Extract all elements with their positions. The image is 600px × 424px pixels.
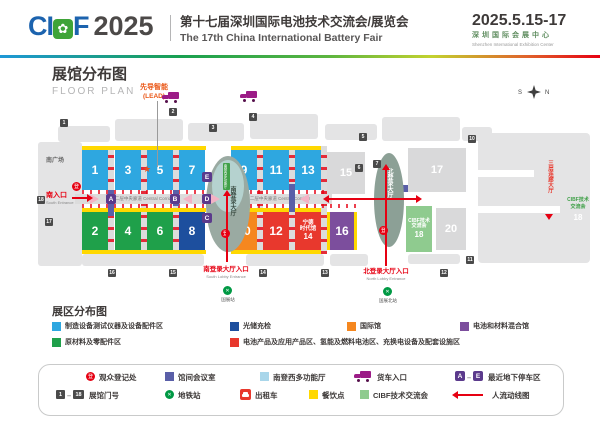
- gate-6: 6: [355, 164, 363, 172]
- north-lobby-entrance-en: North Lobby Entrance: [350, 277, 422, 282]
- hall-16: 16: [330, 212, 354, 250]
- flow-arrow-pink: [183, 194, 192, 204]
- legend-food-swatch: [309, 390, 318, 399]
- building-shape: [250, 114, 318, 139]
- gate-15: 15: [169, 269, 177, 277]
- lead-label-cn: 先导智能: [130, 84, 178, 92]
- metro-station-icon: ✕: [383, 287, 392, 296]
- legend-meeting-swatch: [165, 372, 174, 381]
- logo-ci: CI: [28, 11, 53, 41]
- lead-pointer-line: [157, 101, 158, 167]
- corridor-flow-arrowhead-left: [323, 195, 329, 203]
- logo-year: 2025: [94, 11, 154, 41]
- zone-label: 电池产品及应用产品区、氢能及燃料电池区、充换电设备及配套设施区: [243, 339, 460, 346]
- legend-parking-a: A: [455, 371, 465, 381]
- south-flow-arrow: [226, 196, 228, 262]
- gate-10: 10: [468, 135, 476, 143]
- header-gradient-bar: [0, 55, 600, 58]
- zone-swatch-red: [230, 338, 239, 347]
- gate-7: 7: [373, 160, 381, 168]
- legend-parking-e: E: [473, 371, 483, 381]
- yellow-strip: [354, 212, 357, 250]
- truck-icon: [162, 92, 179, 103]
- legend-taxi-icon: [240, 389, 251, 400]
- south-entrance-en: South Entrance: [46, 201, 74, 206]
- compass-s: S: [518, 90, 522, 97]
- hall-11: 11: [263, 150, 289, 190]
- parking-gate-a: A: [106, 194, 116, 204]
- legend-metro-icon: ✕: [165, 390, 174, 399]
- zones-title: 展区分布图: [52, 306, 107, 319]
- legend-cibf-label: CIBF技术交流会: [373, 392, 428, 400]
- gate-18: 18: [37, 196, 45, 204]
- building-gap: [478, 206, 560, 213]
- right-cibf-number: 18: [560, 213, 596, 222]
- legend-dash: –: [67, 392, 71, 400]
- legend-gate-label: 展馆门号: [89, 392, 119, 400]
- hall-17: 17: [408, 148, 466, 192]
- legend-cibf-swatch: [360, 390, 369, 399]
- truck-icon: [240, 91, 257, 102]
- gate-11: 11: [466, 256, 474, 264]
- building-shape: [408, 254, 460, 264]
- yellow-strip: [82, 250, 206, 254]
- legend-meeting-label: 馆间会议室: [178, 374, 216, 382]
- zone-label: 光储充检: [243, 323, 271, 330]
- fair-title-en: The 17th China International Battery Fai…: [180, 32, 382, 44]
- venue-en: Shenzhen International Exhibition Center: [472, 42, 554, 47]
- north-lobby-entrance-cn: 北登录大厅入口: [350, 268, 422, 275]
- right-cibf-line2: 交流会: [560, 205, 596, 211]
- parking-gate-b: B: [170, 194, 180, 204]
- south-flow-arrowhead: [223, 190, 231, 196]
- legend-metro-label: 地铁站: [178, 392, 201, 400]
- gate-5: 5: [359, 133, 367, 141]
- legend-registration-label: 观众登记处: [99, 374, 137, 382]
- gate-12: 12: [440, 269, 448, 277]
- building-shape: [58, 126, 110, 142]
- right-cibf-line1: CIBF技术: [560, 198, 596, 204]
- hall-14-number: 14: [304, 233, 313, 241]
- metro-station-icon: ✕: [223, 286, 232, 295]
- compass-icon: [527, 85, 541, 99]
- gate-4: 4: [249, 113, 257, 121]
- building-gap: [478, 170, 534, 177]
- legend-taxi-label: 出租车: [255, 392, 278, 400]
- building-shape: [382, 117, 460, 141]
- legend-gate-18: 18: [73, 390, 84, 399]
- hall-20: 20: [436, 208, 466, 250]
- hall-14-catl: 宁德 时代馆 14: [295, 212, 321, 250]
- legend-food-label: 餐饮点: [322, 392, 345, 400]
- flow-arrow-pink: [211, 194, 220, 204]
- legend-parking-label: 最近地下停车区: [488, 374, 541, 382]
- zone-swatch-purple: [460, 322, 469, 331]
- legend-registration-icon: 登: [86, 372, 95, 381]
- bridge-hall-arrow: [545, 214, 553, 220]
- hall-18-line2: 交流会: [411, 224, 426, 229]
- battery-flower-icon: ✿: [53, 19, 73, 39]
- corridor-label-east: 二层中央廊道 Central Corridor: [238, 194, 322, 203]
- zone-swatch-dark-blue: [230, 322, 239, 331]
- hall-4: 4: [115, 212, 141, 250]
- zone-swatch-light-blue: [52, 322, 61, 331]
- legend-multi-hall-swatch: [260, 372, 269, 381]
- meeting-room-segment: [289, 184, 295, 212]
- hall-18-number: 18: [415, 231, 424, 239]
- cibf-logo: CI✿F2025: [28, 11, 154, 42]
- building-shape: [82, 254, 204, 266]
- gate-2: 2: [169, 108, 177, 116]
- fair-title-cn: 第十七届深圳国际电池技术交流会/展览会: [180, 15, 408, 29]
- gate-13: 13: [321, 269, 329, 277]
- hall-12: 12: [263, 212, 289, 250]
- legend-dash: –: [467, 374, 471, 382]
- parking-gate-c: C: [202, 213, 212, 223]
- zone-label: 制造设备测试仪器及设备配件区: [65, 323, 163, 330]
- north-flow-arrow: [385, 170, 387, 266]
- north-flow-arrowhead: [382, 164, 390, 170]
- south-entrance-arrow: [72, 197, 88, 199]
- venue-cn: 深圳国际会展中心: [472, 32, 552, 40]
- bridge-hall-label: 三层连廊大厅: [546, 160, 554, 193]
- south-entrance-cn: 南入口: [46, 192, 67, 200]
- south-entrance-arrowhead: [87, 194, 93, 202]
- hall-3: 3: [115, 150, 141, 190]
- building-shape: [330, 254, 368, 266]
- building-shape: [115, 119, 183, 141]
- corridor-flow-arrow: [328, 198, 418, 200]
- hall-7: 7: [179, 150, 205, 190]
- hall-18-cibf: CIBF技术 交流会 18: [406, 206, 432, 252]
- map-title-en: FLOOR PLAN: [52, 86, 135, 98]
- legend-multi-hall-label: 南登西多功能厅: [273, 374, 326, 382]
- legend-flow-arrow: [457, 394, 483, 396]
- logo-f: F: [73, 11, 89, 41]
- metro-south-label: 国展站: [204, 297, 252, 302]
- gate-3: 3: [209, 124, 217, 132]
- hall-15: 15: [327, 152, 365, 194]
- map-title-cn: 展馆分布图: [52, 66, 127, 83]
- flow-arrow-pink: [300, 194, 309, 204]
- corridor-flow-arrowhead-right: [416, 195, 422, 203]
- zone-swatch-orange: [347, 322, 356, 331]
- metro-north-label: 国展北站: [364, 298, 412, 303]
- lead-star-icon: ★: [143, 165, 151, 174]
- zone-label: 原材料及零配件区: [65, 339, 121, 346]
- legend-truck-icon: [354, 371, 371, 382]
- gate-16: 16: [108, 269, 116, 277]
- south-lobby-entrance-en: South Lobby Entrance: [190, 275, 262, 280]
- legend-flow-arrowhead: [452, 391, 458, 399]
- gate-17: 17: [45, 218, 53, 226]
- registration-pin: 登: [72, 182, 81, 191]
- hall-2: 2: [82, 212, 108, 250]
- legend-gate-1: 1: [56, 390, 65, 399]
- building-shape: [325, 124, 377, 140]
- hall-6: 6: [147, 212, 173, 250]
- header-divider: [170, 15, 171, 41]
- floor-plan-poster: CI✿F2025 第十七届深圳国际电池技术交流会/展览会 The 17th Ch…: [0, 0, 600, 424]
- legend-truck-label: 货车入口: [377, 374, 407, 382]
- fair-date: 2025.5.15-17: [472, 12, 566, 30]
- gate-1: 1: [60, 119, 68, 127]
- building-shape: [246, 254, 324, 266]
- legend-flow-label: 人流动线图: [492, 392, 530, 400]
- zone-swatch-green: [52, 338, 61, 347]
- legend-box: [38, 364, 564, 416]
- zone-label: 国际馆: [360, 323, 381, 330]
- zone-label: 电池和材料混合馆: [473, 323, 529, 330]
- yellow-strip: [231, 250, 321, 254]
- hall-1: 1: [82, 150, 108, 190]
- south-plaza-label: 南广场: [46, 158, 64, 165]
- compass-n: N: [545, 90, 549, 97]
- south-lobby-entrance-cn: 南登录大厅入口: [190, 266, 262, 273]
- hall-13: 13: [295, 150, 321, 190]
- parking-gate-e: E: [202, 172, 212, 182]
